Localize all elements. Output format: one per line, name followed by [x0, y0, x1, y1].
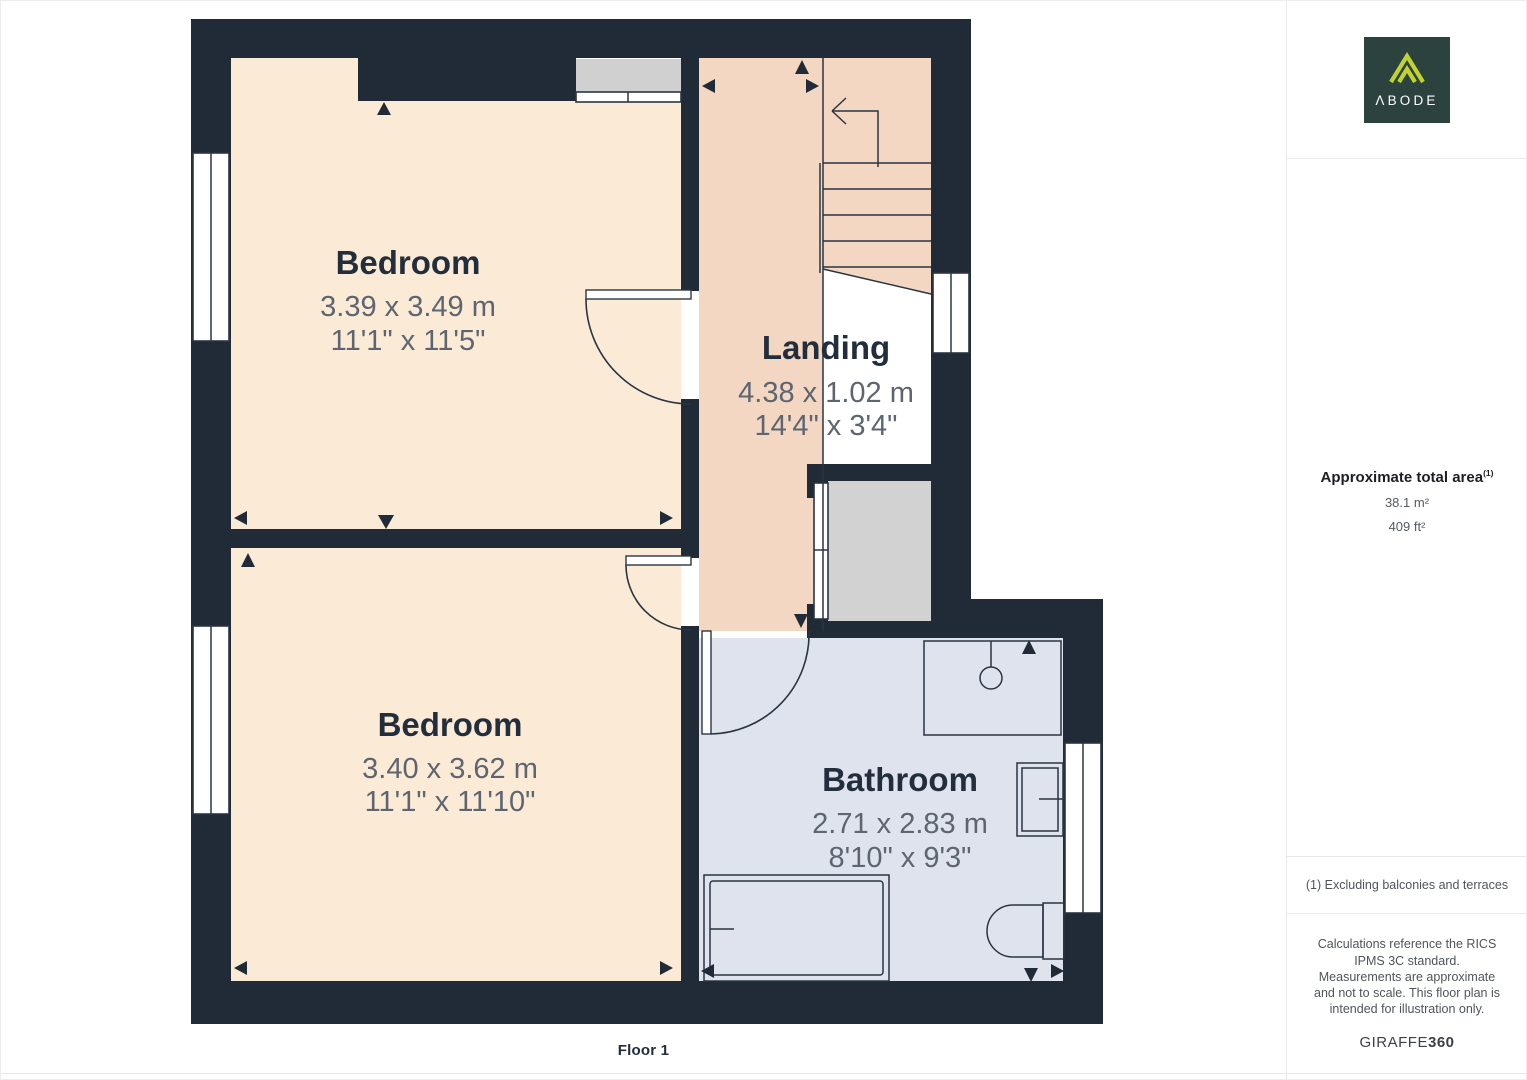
- disclaimer-text: Calculations reference the RICS IPMS 3C …: [1314, 936, 1500, 1017]
- giraffe360-brand: GIRAFFE360: [1359, 1034, 1454, 1051]
- room-dim-m-bedroom-1: 3.39 x 3.49 m: [320, 291, 496, 323]
- floor-plan-area: Bedroom 3.39 x 3.49 m 11'1" x 11'5" Bedr…: [1, 1, 1286, 1080]
- understairs-cupboard: [828, 481, 931, 621]
- total-area-metric: 38.1 m²: [1385, 495, 1429, 510]
- page: Bedroom 3.39 x 3.49 m 11'1" x 11'5" Bedr…: [0, 0, 1527, 1080]
- window-left-lower: [193, 626, 229, 814]
- logo-background: [1364, 37, 1450, 123]
- room-dim-m-bathroom: 2.71 x 2.83 m: [812, 808, 988, 840]
- room-dim-ft-bedroom-2: 11'1" x 11'10": [365, 786, 536, 818]
- room-dim-ft-bedroom-1: 11'1" x 11'5": [331, 325, 486, 357]
- room-dim-m-bedroom-2: 3.40 x 3.62 m: [362, 753, 538, 785]
- brand-name: GIRAFFE: [1359, 1034, 1428, 1051]
- room-name-bedroom-1: Bedroom: [336, 244, 481, 281]
- room-name-bathroom: Bathroom: [822, 761, 978, 798]
- room-name-bedroom-2: Bedroom: [378, 706, 523, 743]
- total-area-title-text: Approximate total area: [1321, 469, 1484, 486]
- footnote-text: (1) Excluding balconies and terraces: [1306, 878, 1508, 892]
- room-dim-m-landing: 4.38 x 1.02 m: [738, 377, 914, 409]
- window-alcove: [576, 59, 681, 93]
- window-left-upper: [193, 153, 229, 341]
- window-bedroom-top-sill: [576, 92, 681, 102]
- window-bathroom-right: [1065, 743, 1101, 913]
- total-area-imperial: 409 ft²: [1389, 519, 1426, 534]
- abode-logo: ΛBODE: [1364, 37, 1450, 123]
- floor-plan-drawing: Bedroom 3.39 x 3.49 m 11'1" x 11'5" Bedr…: [1, 1, 1286, 1080]
- bottom-divider: [1, 1073, 1527, 1074]
- brand-suffix: 360: [1428, 1034, 1455, 1051]
- room-dim-ft-landing: 14'4" x 3'4": [755, 410, 898, 442]
- total-area-footnote-marker: (1): [1483, 468, 1493, 478]
- window-landing-right: [933, 273, 969, 353]
- logo-section: ΛBODE: [1287, 1, 1527, 159]
- room-name-landing: Landing: [762, 329, 890, 366]
- total-area-title: Approximate total area(1): [1321, 468, 1494, 486]
- floor-label: Floor 1: [1, 1042, 1286, 1059]
- disclaimer-section: Calculations reference the RICS IPMS 3C …: [1287, 913, 1527, 1073]
- room-dim-ft-bathroom: 8'10" x 9'3": [829, 842, 972, 874]
- footnote-section: (1) Excluding balconies and terraces: [1287, 856, 1527, 913]
- sidebar: ΛBODE Approximate total area(1) 38.1 m² …: [1286, 1, 1527, 1080]
- cupboard-partition: [814, 483, 828, 619]
- total-area-section: Approximate total area(1) 38.1 m² 409 ft…: [1287, 159, 1527, 856]
- logo-text: ΛBODE: [1375, 93, 1438, 108]
- room-floor-stairwell: [823, 58, 931, 294]
